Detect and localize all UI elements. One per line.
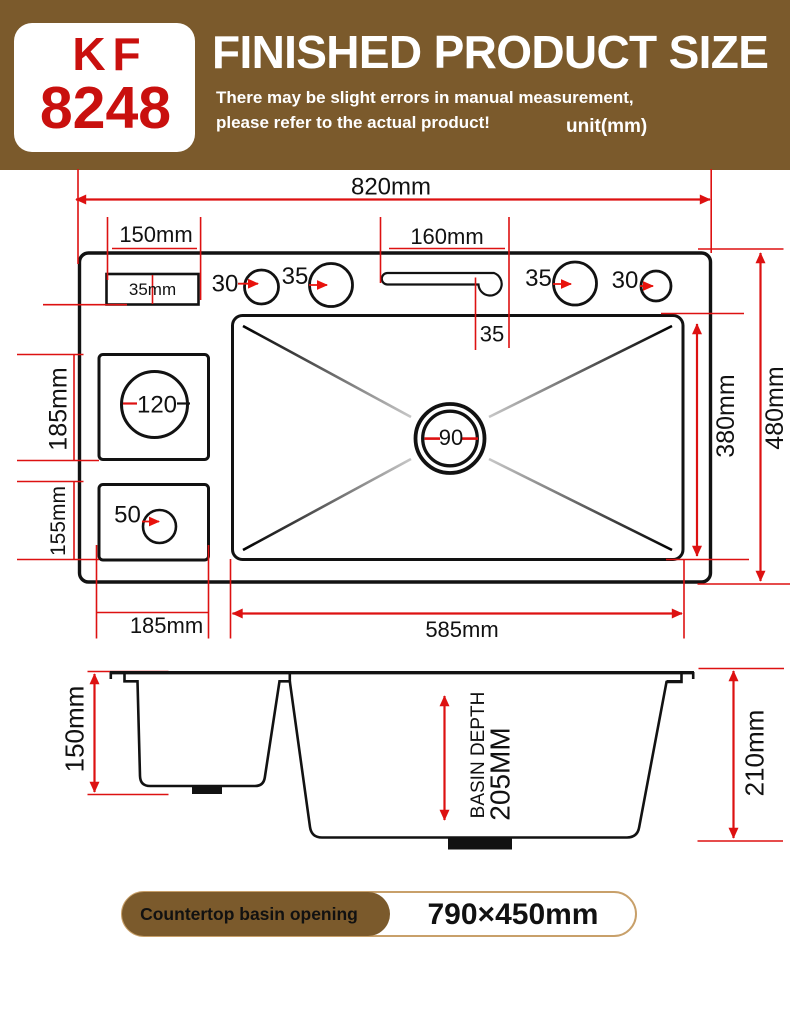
svg-text:185mm: 185mm — [130, 613, 203, 638]
svg-text:185mm: 185mm — [45, 367, 73, 450]
svg-text:30: 30 — [212, 270, 239, 297]
svg-text:35mm: 35mm — [129, 280, 176, 299]
svg-text:90: 90 — [439, 425, 463, 450]
svg-text:120: 120 — [137, 392, 177, 419]
svg-text:790×450mm: 790×450mm — [428, 898, 599, 931]
svg-text:35: 35 — [480, 322, 504, 347]
svg-text:150mm: 150mm — [60, 686, 90, 773]
svg-text:35: 35 — [282, 263, 309, 290]
svg-text:480mm: 480mm — [761, 366, 789, 449]
svg-text:820mm: 820mm — [351, 174, 431, 201]
svg-text:380mm: 380mm — [712, 374, 740, 457]
svg-text:160mm: 160mm — [410, 224, 483, 249]
svg-text:210mm: 210mm — [740, 710, 770, 797]
svg-text:155mm: 155mm — [47, 486, 70, 556]
svg-text:50: 50 — [114, 502, 141, 529]
svg-text:30: 30 — [612, 267, 639, 294]
svg-text:205MM: 205MM — [485, 727, 516, 820]
svg-text:35: 35 — [525, 265, 552, 292]
svg-text:Countertop basin opening: Countertop basin opening — [140, 904, 358, 924]
svg-text:150mm: 150mm — [119, 222, 192, 247]
svg-text:585mm: 585mm — [425, 617, 498, 642]
